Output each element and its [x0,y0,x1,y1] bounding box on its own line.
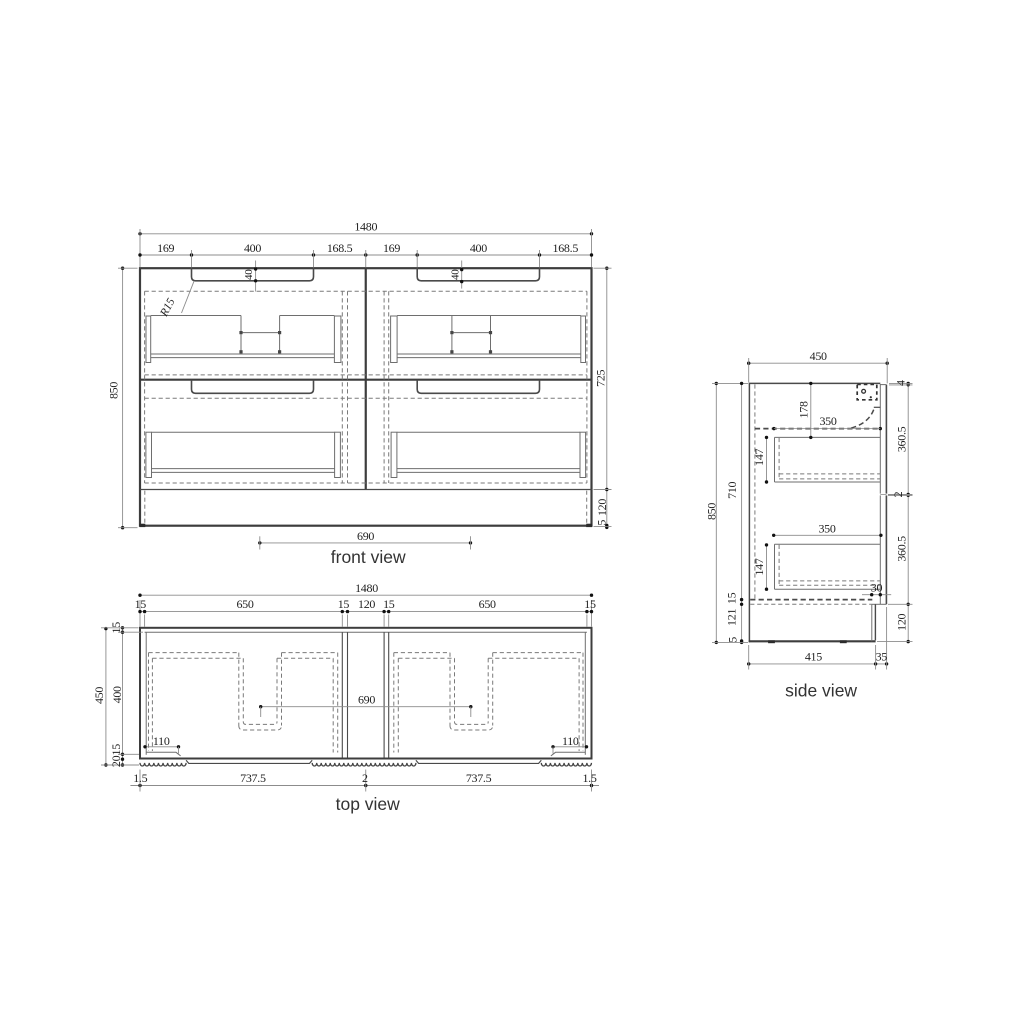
svg-text:top view: top view [336,794,401,814]
svg-text:737.5: 737.5 [466,771,492,785]
svg-text:650: 650 [236,597,253,611]
svg-text:690: 690 [357,529,374,543]
svg-text:120: 120 [895,613,909,630]
svg-text:121: 121 [725,609,739,626]
svg-text:4: 4 [894,380,908,386]
svg-text:168.5: 168.5 [327,241,353,255]
svg-text:360.5: 360.5 [895,426,909,452]
svg-text:650: 650 [479,597,496,611]
svg-text:front view: front view [331,547,406,567]
svg-text:450: 450 [92,687,106,704]
svg-text:178: 178 [796,401,810,418]
svg-text:120: 120 [595,499,609,516]
svg-text:2: 2 [891,491,905,497]
svg-text:850: 850 [107,382,121,399]
svg-text:110: 110 [153,734,170,748]
svg-text:5: 5 [725,637,739,643]
svg-text:737.5: 737.5 [240,771,266,785]
svg-text:350: 350 [818,521,835,535]
svg-text:400: 400 [244,241,261,255]
svg-text:15: 15 [383,597,395,611]
svg-text:40: 40 [449,269,461,280]
svg-text:2: 2 [362,771,368,785]
svg-text:1480: 1480 [355,581,378,595]
svg-text:725: 725 [593,369,607,386]
svg-text:5: 5 [594,520,608,526]
svg-text:15: 15 [109,622,123,634]
svg-text:169: 169 [157,241,174,255]
svg-text:35: 35 [876,649,888,663]
svg-text:400: 400 [110,686,124,703]
svg-text:15: 15 [584,597,596,611]
svg-text:690: 690 [358,693,375,707]
svg-text:120: 120 [358,597,375,611]
svg-text:1480: 1480 [354,220,377,234]
svg-text:15: 15 [725,592,739,604]
svg-text:710: 710 [725,481,739,498]
svg-text:169: 169 [383,241,400,255]
svg-text:15: 15 [338,597,350,611]
svg-text:400: 400 [470,241,487,255]
svg-text:110: 110 [562,734,579,748]
svg-text:40: 40 [243,269,255,280]
svg-text:415: 415 [805,649,822,663]
svg-text:1.5: 1.5 [582,771,596,785]
svg-text:850: 850 [705,503,719,520]
svg-text:450: 450 [810,349,827,363]
svg-text:360.5: 360.5 [895,536,909,562]
svg-text:15: 15 [135,597,147,611]
svg-text:30: 30 [871,581,883,595]
svg-text:147: 147 [752,448,766,465]
svg-text:168.5: 168.5 [553,241,579,255]
svg-text:20: 20 [109,755,123,767]
svg-text:147: 147 [752,558,766,575]
svg-text:15: 15 [109,744,123,756]
svg-text:side view: side view [785,681,857,701]
svg-text:350: 350 [819,414,836,428]
svg-text:1.5: 1.5 [133,771,147,785]
